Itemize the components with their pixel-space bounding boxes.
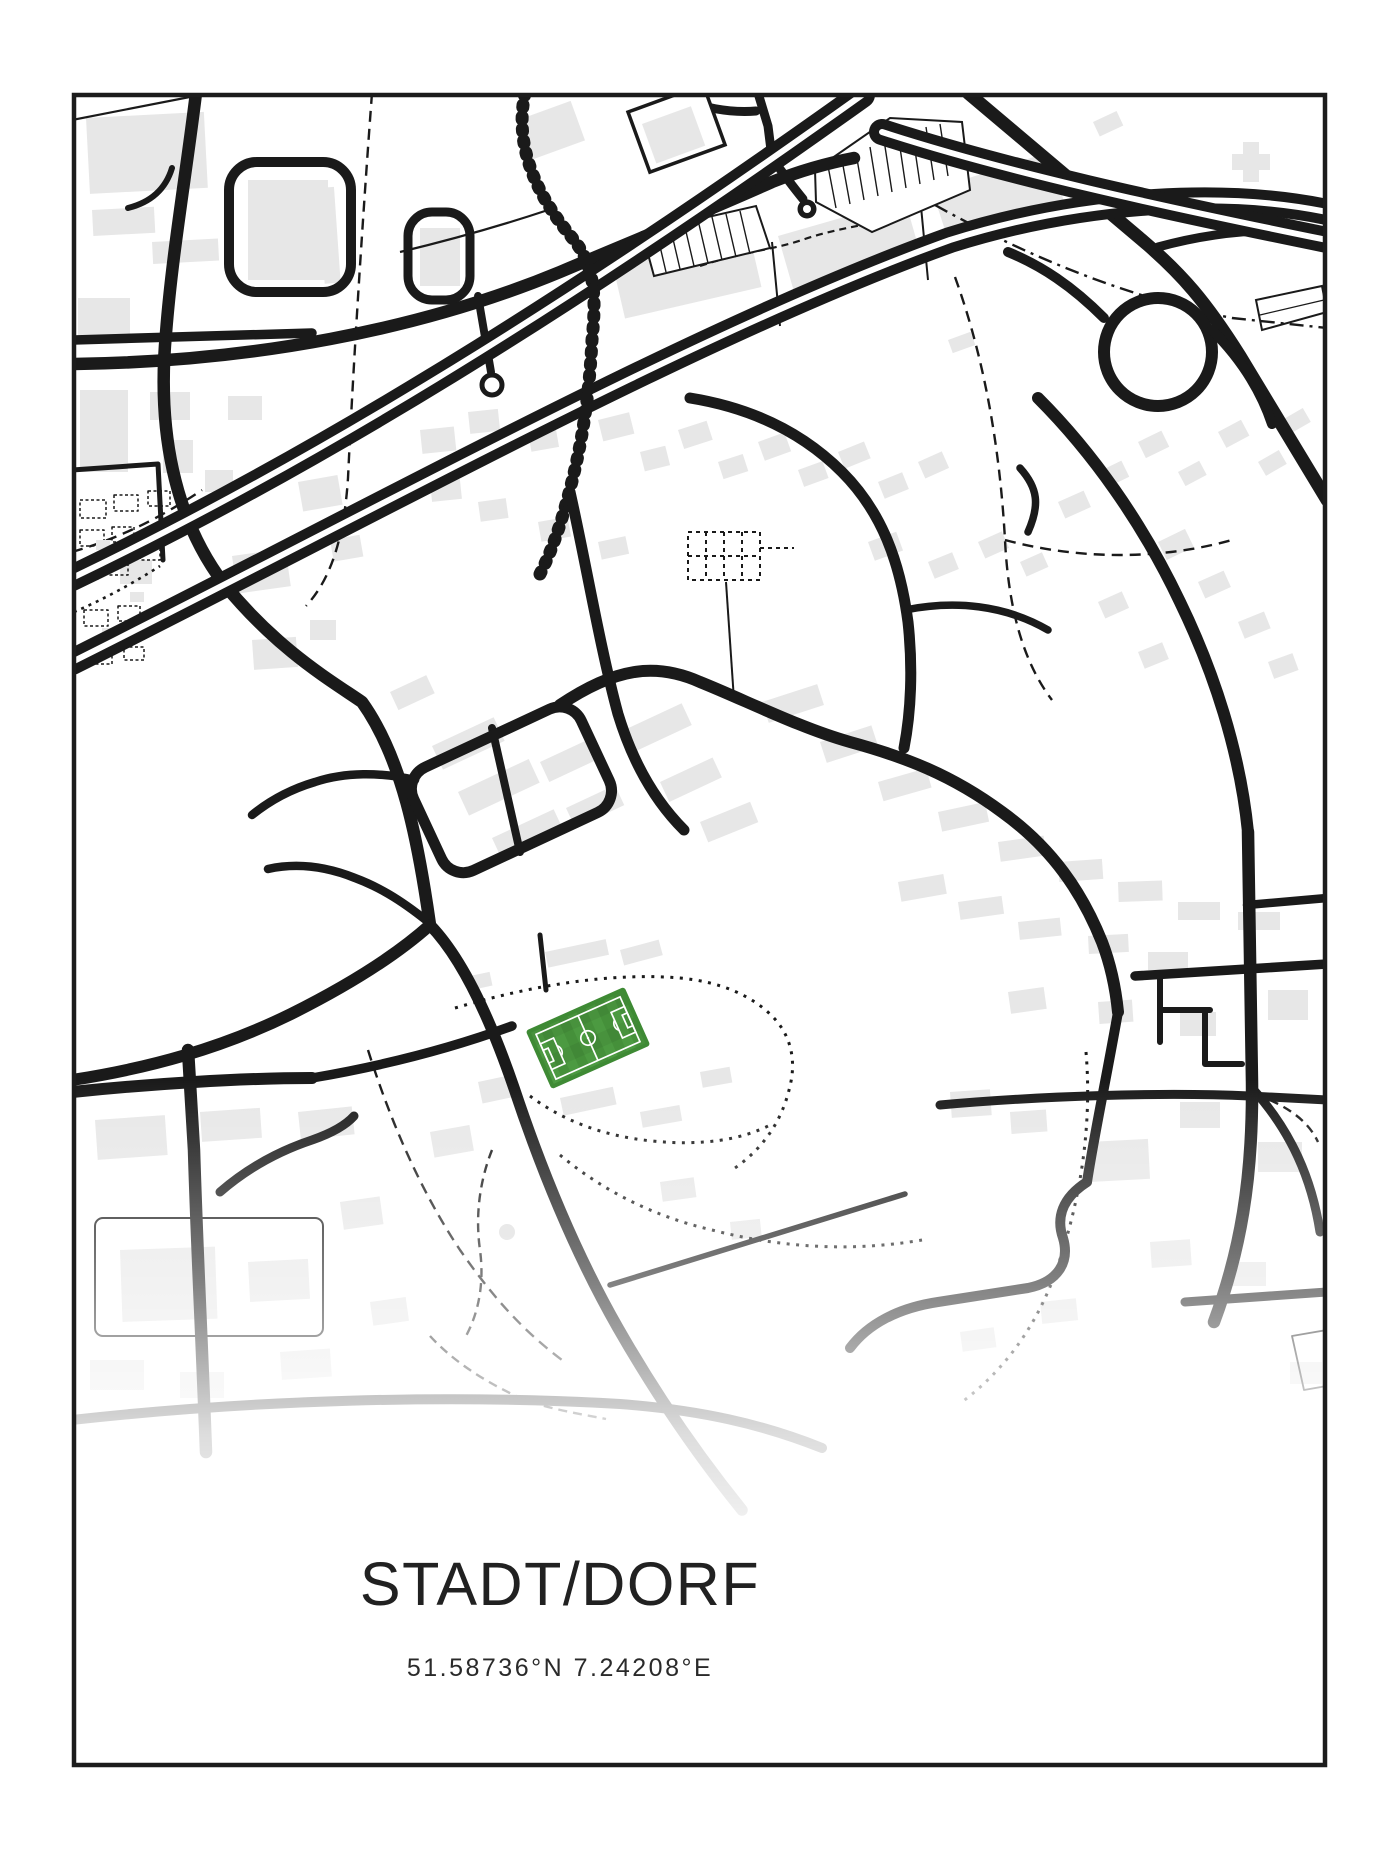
street-map [72, 85, 1327, 1765]
motorway-loop-ramp [1104, 298, 1212, 406]
poster-page: STADT/DORF 51.58736°N 7.24208°E [0, 0, 1400, 1865]
outlined-building [628, 85, 725, 173]
poster-coordinates: 51.58736°N 7.24208°E [407, 1656, 713, 1681]
poster-title: STADT/DORF [360, 1554, 760, 1615]
football-pitch [526, 987, 651, 1089]
